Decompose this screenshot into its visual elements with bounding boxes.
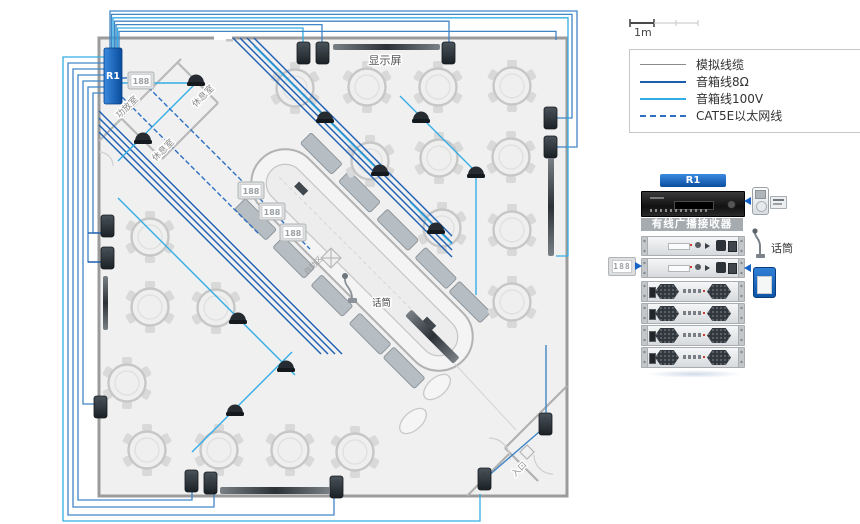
paging-station-card [757,276,772,294]
clock-display: 188 [259,203,285,220]
preamp-power [728,241,737,252]
rack-ear [738,304,744,323]
wall-speaker [297,42,310,64]
amp-vent [655,350,679,365]
display-screen-bar [333,44,440,50]
amp-power-switch [649,309,656,320]
cable-legend: 模拟线缆 音箱线8Ω 音箱线100V CAT5E以太网线 [629,49,860,133]
receiver-buttons [650,209,710,212]
wall-speaker [204,472,217,494]
wired-receiver-banner: 有线广播接收器 [641,218,743,231]
r1-wall-label: R1 [106,71,120,82]
wall-speaker [544,107,557,129]
made-for-ipod-badge [770,196,787,209]
clock-digits: 188 [243,187,260,196]
bottom-display-bar [220,487,330,494]
amplifier-unit-4 [641,347,745,368]
preamp-chevron [705,265,710,271]
wall-speaker [94,396,107,418]
rack-mic-label: 话筒 [771,240,793,256]
amp-vent [707,350,731,365]
legend-label: 音箱线100V [696,90,763,107]
rack-microphone: 话筒 [750,228,824,258]
legend-item-8ohm: 音箱线8Ω [640,73,860,90]
clock-display: 188 [238,182,264,199]
amplifier-unit-3 [641,325,745,346]
rack-ear [738,348,744,367]
legend-label: 模拟线缆 [696,56,744,73]
clock-to-preamp-arrow [635,262,642,270]
wall-speaker [442,42,455,64]
preamp-display [668,243,690,250]
preamp-power [728,263,737,274]
legend-item-cat5e: CAT5E以太网线 [640,107,860,124]
clock-digits: 188 [133,77,150,86]
r1-wall-controller: R1 [104,48,122,104]
r1-receiver-unit [641,191,745,217]
ipod-screen [755,190,766,199]
legend-label: 音箱线8Ω [696,73,749,90]
clock-display: 188 [280,224,306,241]
receiver-indicator [650,197,664,199]
amp-vent [707,328,731,343]
amplifier-unit-2 [641,303,745,324]
amp-vent [655,328,679,343]
legend-item-100v: 音箱线100V [640,90,860,107]
wall-speaker [544,136,557,158]
amp-vent [655,306,679,321]
amp-controls [683,355,705,359]
amp-power-switch [649,331,656,342]
amp-controls [683,289,705,293]
preamp-display [668,265,690,272]
preamp-module [716,262,726,273]
rack-ear [642,304,648,323]
wall-speaker [539,413,552,435]
clock-digits: 188 [264,208,281,217]
clock-digits: 188 [285,229,302,238]
wall-speaker [101,247,114,269]
rack-ear [738,237,744,255]
amp-vent [655,284,679,299]
display-screen-label: 显示屏 [369,54,402,67]
amp-vent [707,284,731,299]
rack-ear [642,326,648,345]
rack-ear [738,326,744,345]
amp-vent [707,306,731,321]
amp-controls [683,311,705,315]
microphone-icon [750,228,772,258]
preamp-unit-1 [641,236,745,256]
wall-speaker [478,468,491,490]
ipod-to-receiver-arrow [744,197,751,205]
equipment-rack-stack: R1 有线广播接收器 [606,170,860,382]
rack-clock-display: 188 [608,257,636,276]
rack-ear [642,259,648,277]
preamp-led [690,244,692,246]
rack-ear [642,348,648,367]
floorplan-svg: 188 188 188 188 [0,0,600,524]
ipod-player [752,187,769,215]
rack-ear [642,282,648,301]
right-wall-bar [548,158,554,256]
preamp-knob [695,264,701,270]
scale-bar: 1m [628,14,708,40]
rack-clock-digits: 188 [612,260,632,273]
ipod-clickwheel [756,201,767,212]
wall-speaker [330,476,343,498]
scale-bar-label: 1m [634,26,652,39]
wall-speaker [101,215,114,237]
amp-controls [683,333,705,337]
rack-ear [642,237,648,255]
wall-speaker [316,42,329,64]
speaker-100v-swatch [640,98,686,100]
preamp-unit-2 [641,258,745,278]
mic-to-preamp-arrow [744,264,751,272]
amp-power-switch [649,353,656,364]
cat5e-swatch [640,115,686,117]
preamp-led [690,266,692,268]
preamp-knob [695,242,701,248]
preamp-chevron [705,243,710,249]
legend-item-analog: 模拟线缆 [640,56,860,73]
stack-shadow [646,370,742,378]
speaker-8ohm-swatch [640,81,686,83]
legend-label: CAT5E以太网线 [696,107,782,124]
preamp-module [716,240,726,251]
amp-power-switch [649,287,656,298]
rack-ear [738,282,744,301]
receiver-knob [727,200,736,209]
paging-station [753,267,776,298]
r1-banner: R1 [660,174,726,187]
clock-display: 188 [128,72,154,89]
av-system-diagram: 188 188 188 188 [0,0,860,524]
amplifier-unit-1 [641,281,745,302]
left-wall-bar [103,276,108,330]
wall-speaker [185,470,198,492]
analog-cable-swatch [640,64,686,65]
floor-mic-label: 话筒 [372,297,391,309]
